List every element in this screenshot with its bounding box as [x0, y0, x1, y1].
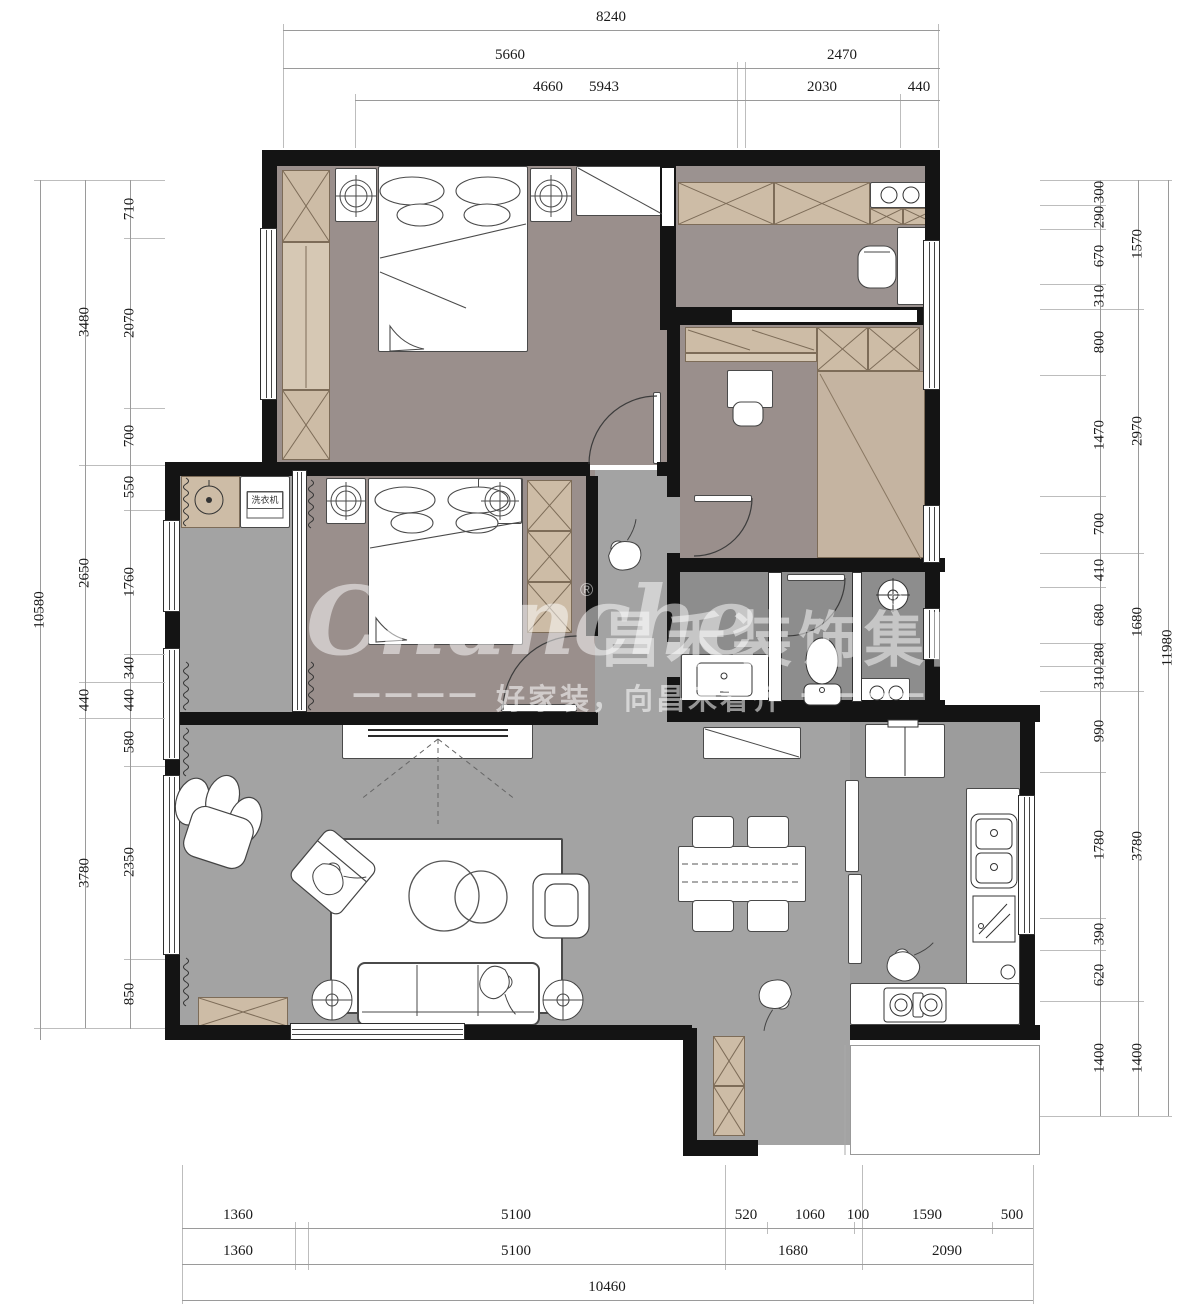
ext-line [900, 94, 901, 148]
washing-machine-label: 洗衣机 [247, 491, 283, 509]
watermark-registered: ® [890, 590, 903, 611]
tagline-dash-left: ———— [352, 676, 480, 718]
dim-label: 290 [1092, 206, 1109, 229]
watermark-registered: ® [580, 580, 593, 601]
dim-label: 680 [1092, 604, 1109, 627]
dim-label: 10580 [32, 591, 49, 629]
x-lines [775, 183, 869, 224]
wall-segment [262, 150, 940, 166]
ext-line [283, 24, 284, 148]
dim-label: 440 [122, 689, 139, 712]
dim-label: 390 [1092, 923, 1109, 946]
ext-line [308, 1222, 309, 1270]
wall-segment [262, 400, 277, 462]
tatami-shelf [685, 327, 817, 353]
ext-line [725, 1165, 726, 1270]
ext-line [1040, 1001, 1144, 1002]
wall-segment [465, 1025, 692, 1040]
dim-label: 3780 [77, 858, 94, 888]
dim-label: 500 [1001, 1207, 1024, 1224]
ext-line [1040, 229, 1106, 230]
kitchen-sliding-door [848, 874, 862, 964]
wall-niche [732, 310, 917, 322]
dim-label: 280 [1092, 643, 1109, 666]
x-lines [871, 209, 902, 224]
sideboard [703, 727, 801, 759]
wall-segment [262, 166, 277, 230]
dim-label: 1680 [1130, 607, 1147, 637]
dim-label: 520 [735, 1207, 758, 1224]
wall-segment [925, 150, 940, 240]
ext-line [1040, 375, 1106, 376]
sofa [357, 962, 540, 1026]
shoe-cabinet-xbox [713, 1036, 745, 1086]
x-lines [199, 998, 287, 1026]
tatami-desk [727, 370, 773, 408]
window [260, 228, 277, 400]
dim-label: 1360 [223, 1207, 253, 1224]
dining-chair [692, 900, 734, 932]
dim-label: 1680 [778, 1243, 808, 1260]
dim-label: 1470 [1092, 420, 1109, 450]
dim-label: 1570 [1130, 229, 1147, 259]
dim-label: 310 [1092, 285, 1109, 308]
nightstand [530, 168, 572, 222]
dim-label: 11980 [1160, 630, 1177, 667]
dim-label: 710 [122, 198, 139, 221]
dim-label: 5100 [501, 1207, 531, 1224]
dim-label: 1760 [122, 567, 139, 597]
wall-segment [1020, 935, 1035, 1040]
ext-line [79, 718, 165, 719]
dim-label: 10460 [588, 1279, 626, 1296]
shoe-cabinet-xbox [713, 1086, 745, 1136]
watermark-tagline: ———— 好家装，向昌禾看齐 ———— [352, 676, 928, 718]
master-bed [378, 166, 528, 352]
dim-label: 1590 [912, 1207, 942, 1224]
ext-line [1040, 918, 1106, 919]
dim-label: 850 [122, 983, 139, 1006]
dim-label: 2650 [77, 558, 94, 588]
dim-label: 2030 [807, 79, 837, 96]
dining-chair [747, 900, 789, 932]
wardrobe-panel [282, 242, 330, 390]
washing-machine: 洗衣机 [240, 476, 290, 528]
entry-landing [850, 1045, 1040, 1155]
watermark-brand-cn: 昌禾装饰集团 [600, 592, 996, 679]
dim-label: 620 [1092, 964, 1109, 987]
dim-label: 440 [908, 79, 931, 96]
dim-label: 4660 [533, 79, 563, 96]
ext-line [34, 1028, 165, 1029]
window [923, 505, 940, 563]
dim-label: 300 [1092, 181, 1109, 204]
wall-segment [683, 1028, 697, 1140]
door-leaf [653, 392, 661, 464]
dim-label: 2970 [1130, 416, 1147, 446]
window [923, 240, 940, 390]
kitchen-counter-bottom [850, 983, 1020, 1025]
x-lines [869, 328, 919, 370]
window [290, 1023, 465, 1040]
window [163, 648, 180, 760]
dim-label: 3780 [1130, 831, 1147, 861]
x-lines [283, 391, 329, 459]
dim-label: 700 [1092, 513, 1109, 536]
dim-label: 440 [77, 689, 94, 712]
dim-label: 100 [847, 1207, 870, 1224]
wall-segment [667, 325, 680, 497]
living-cabinet-xbox [198, 997, 288, 1027]
dim-line [283, 30, 940, 31]
tagline-text: 好家装，向昌禾看齐 [496, 676, 784, 718]
dim-label: 2470 [827, 47, 857, 64]
ext-line [745, 62, 746, 148]
dim-line [1138, 180, 1139, 1116]
tatami-bed [817, 371, 925, 558]
wall-segment [850, 1025, 1040, 1040]
wall-segment [165, 712, 305, 725]
dim-label: 2350 [122, 847, 139, 877]
tagline-dash-right: ———— [800, 676, 928, 718]
wall-segment [925, 390, 940, 505]
ext-line [938, 24, 939, 148]
wardrobe-xbox [282, 390, 330, 460]
dim-line [182, 1264, 1033, 1265]
dim-line [355, 100, 940, 101]
dresser [576, 166, 664, 216]
dim-label: 1360 [223, 1243, 253, 1260]
ext-line [1040, 496, 1106, 497]
dim-label: 410 [1092, 559, 1109, 582]
ext-line [1040, 1116, 1172, 1117]
window [1018, 795, 1035, 935]
window [163, 520, 180, 612]
fridge [865, 724, 945, 778]
wall-segment [165, 462, 307, 476]
x-lines [714, 1037, 744, 1085]
wall-niche [662, 168, 674, 226]
ext-line [355, 94, 356, 148]
ext-line [1040, 553, 1144, 554]
ext-line [1040, 691, 1144, 692]
window [163, 775, 180, 955]
dim-label: 700 [122, 425, 139, 448]
ext-line [1040, 587, 1106, 588]
dim-line [182, 1228, 1033, 1229]
dim-label: 2090 [932, 1243, 962, 1260]
ext-line [79, 682, 165, 683]
nightstand [326, 478, 366, 524]
laundry-counter [181, 476, 240, 528]
nightstand [335, 168, 377, 222]
dim-label: 800 [1092, 331, 1109, 354]
ext-line [1040, 950, 1106, 951]
door-leaf [787, 574, 845, 581]
dim-label: 1400 [1092, 1043, 1109, 1073]
dim-label: 8240 [596, 9, 626, 26]
dim-line [182, 1300, 1033, 1301]
wall-segment [165, 760, 180, 775]
floor-plan-canvas: 洗衣机 [0, 0, 1200, 1316]
x-lines [528, 481, 571, 530]
tatami-wardrobe-xbox [817, 327, 868, 371]
cloakroom-small-xbox [870, 208, 903, 225]
x-lines [818, 328, 867, 370]
dim-label: 1780 [1092, 830, 1109, 860]
wall-segment [165, 612, 180, 648]
dim-label: 5100 [501, 1243, 531, 1260]
x-lines [714, 1087, 744, 1135]
wardrobe-xbox [282, 170, 330, 242]
ext-line [1040, 309, 1144, 310]
tv-console [342, 723, 533, 759]
ext-line [79, 465, 165, 466]
dim-label: 2070 [122, 308, 139, 338]
dim-label: 1400 [1130, 1043, 1147, 1073]
nightstand [478, 478, 522, 524]
ext-line [1040, 772, 1106, 773]
x-lines [679, 183, 773, 224]
wall-segment [165, 462, 180, 520]
dining-chair [692, 816, 734, 848]
dim-label: 1060 [795, 1207, 825, 1224]
ext-line [1033, 1165, 1034, 1304]
tatami-wardrobe-xbox [868, 327, 920, 371]
dim-label: 990 [1092, 720, 1109, 743]
dim-label: 550 [122, 476, 139, 499]
ext-line [182, 1165, 183, 1304]
dim-label: 580 [122, 731, 139, 754]
wall-segment [165, 1025, 292, 1040]
dim-label: 3480 [77, 307, 94, 337]
glass-partition [292, 470, 307, 712]
dim-line [283, 68, 940, 69]
bedroom2-wardrobe-xbox [527, 480, 572, 531]
dim-label: 5943 [589, 79, 619, 96]
dining-table [678, 846, 806, 902]
wall-segment [683, 1140, 758, 1156]
door-leaf [694, 495, 752, 502]
wall-segment [1020, 722, 1035, 795]
dining-chair [747, 816, 789, 848]
cloakroom-wardrobe-xbox [774, 182, 870, 225]
kitchen-counter-right [966, 788, 1020, 985]
dim-label: 310 [1092, 667, 1109, 690]
kitchen-sliding-door [845, 780, 859, 872]
wall-segment [307, 462, 590, 476]
ext-line [34, 180, 165, 181]
dim-label: 340 [122, 657, 139, 680]
dim-label: 670 [1092, 245, 1109, 268]
x-lines [283, 171, 329, 241]
cloakroom-wardrobe-xbox [678, 182, 774, 225]
ext-line [737, 62, 738, 148]
tatami-shelf-edge [685, 353, 817, 362]
dim-label: 5660 [495, 47, 525, 64]
ext-line [295, 1222, 296, 1270]
